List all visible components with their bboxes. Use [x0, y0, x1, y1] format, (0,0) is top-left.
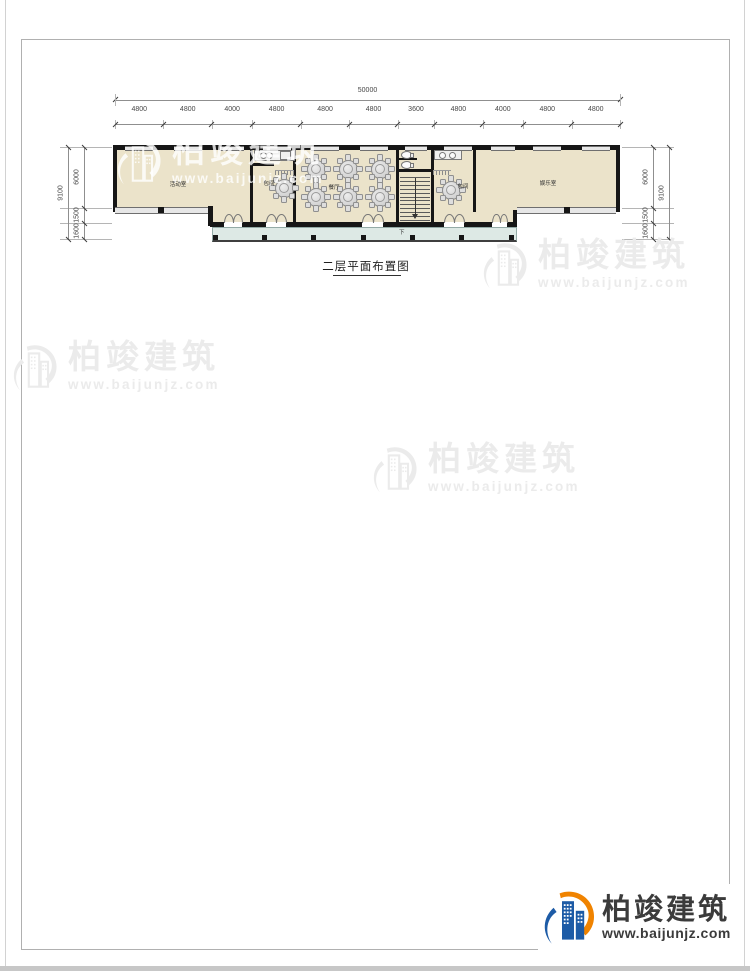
stair-tread — [400, 220, 430, 221]
wall-toilet-bottom — [397, 169, 433, 172]
chair — [337, 202, 343, 208]
chair — [440, 195, 446, 201]
chair — [337, 174, 343, 180]
porch-column — [410, 235, 415, 240]
dim-total-label: 9100 — [659, 185, 666, 201]
wall-core-room4 — [431, 150, 434, 224]
dining-table-center — [375, 164, 385, 174]
dim-segment-label: 6000 — [74, 170, 81, 186]
chair — [292, 185, 298, 191]
dining-table-center — [311, 164, 321, 174]
chair — [356, 194, 362, 200]
room-label: 包间 — [457, 182, 468, 190]
logo-building-icon — [538, 888, 598, 948]
wall-post — [564, 207, 570, 213]
chair — [313, 154, 319, 160]
dim-segment-label: 1600 — [74, 223, 81, 239]
chair — [321, 186, 327, 192]
chair — [333, 166, 339, 172]
chair — [337, 158, 343, 164]
porch-column — [213, 235, 218, 240]
chair — [356, 166, 362, 172]
chair — [385, 202, 391, 208]
chair — [385, 174, 391, 180]
chair — [456, 195, 462, 201]
wall-dining-core — [396, 150, 399, 224]
window — [220, 146, 243, 151]
chair — [440, 179, 446, 185]
dim-bay-label: 4800 — [317, 106, 333, 113]
dim-bay-label: 4800 — [366, 106, 382, 113]
chair — [345, 182, 351, 188]
dim-ext — [622, 239, 674, 240]
wall-post — [158, 207, 164, 213]
dim-bay-label: 3600 — [408, 106, 424, 113]
chair — [353, 186, 359, 192]
chair — [305, 174, 311, 180]
chair — [301, 194, 307, 200]
porch-column — [509, 235, 514, 240]
dim-bay-label: 4000 — [495, 106, 511, 113]
chair — [333, 194, 339, 200]
wall-left — [113, 145, 117, 212]
stair-direction-arrow — [412, 214, 418, 219]
dim-bay-label: 4800 — [588, 106, 604, 113]
dim-ext — [620, 94, 621, 106]
chair — [321, 158, 327, 164]
stair-down-label: 下 — [399, 228, 405, 236]
wall-room4-room5 — [473, 150, 476, 212]
chair — [369, 186, 375, 192]
dim-line-total — [115, 100, 620, 101]
site-logo[interactable]: 柏竣建筑 www.baijunjz.com — [538, 884, 742, 952]
chair — [313, 205, 319, 211]
dim-bay-label: 4800 — [451, 106, 467, 113]
chair — [377, 182, 383, 188]
dim-bay-label: 4800 — [131, 106, 147, 113]
room-label: 餐厅 — [328, 183, 339, 191]
porch-column — [262, 235, 267, 240]
wall-right — [616, 145, 620, 212]
chair — [313, 182, 319, 188]
dining-table-center — [311, 192, 321, 202]
logo-brand-text: 柏竣建筑 — [602, 895, 731, 925]
dim-line-bays — [115, 124, 620, 125]
room-label: 娱乐室 — [540, 179, 557, 187]
porch-column — [311, 235, 316, 240]
chair — [345, 205, 351, 211]
dim-ext — [622, 147, 674, 148]
chair — [369, 158, 375, 164]
stair-center-rail — [415, 178, 417, 214]
wall-room1-room2 — [250, 150, 253, 224]
room-label: 活动室 — [170, 180, 187, 188]
window — [491, 146, 514, 151]
dim-ext — [115, 94, 116, 106]
chair — [369, 174, 375, 180]
washbasin — [439, 152, 446, 159]
chair — [448, 175, 454, 181]
dining-table-center — [446, 185, 456, 195]
chair — [289, 177, 295, 183]
dining-table-center — [343, 164, 353, 174]
chair — [365, 194, 371, 200]
window — [263, 146, 291, 151]
pass-through-hatch — [433, 170, 451, 175]
dim-segment-label: 6000 — [643, 170, 650, 186]
porch-column — [459, 235, 464, 240]
room-label: 包间 — [263, 179, 274, 187]
chair — [388, 194, 394, 200]
sink-basin — [266, 152, 273, 159]
chair — [353, 158, 359, 164]
dim-bay-label: 4800 — [539, 106, 555, 113]
chair — [377, 154, 383, 160]
window — [311, 146, 339, 151]
chair — [388, 166, 394, 172]
window — [125, 146, 153, 151]
chair — [321, 202, 327, 208]
window — [360, 146, 388, 151]
logo-url-text: www.baijunjz.com — [602, 925, 731, 941]
chair — [305, 158, 311, 164]
dim-bay-label: 4800 — [269, 106, 285, 113]
dining-table-center — [279, 183, 289, 193]
dim-line-total — [669, 147, 670, 239]
chair — [353, 174, 359, 180]
dim-total-label: 50000 — [358, 87, 377, 94]
toilet-icon — [401, 151, 412, 159]
dim-segment-label: 1500 — [643, 207, 650, 223]
dim-line-total — [68, 147, 69, 239]
chair — [305, 202, 311, 208]
chair — [301, 166, 307, 172]
dining-table-center — [375, 192, 385, 202]
dim-total-label: 9100 — [58, 185, 65, 201]
chair — [273, 193, 279, 199]
dim-segment-label: 1500 — [74, 207, 81, 223]
window — [533, 146, 561, 151]
window — [444, 146, 472, 151]
chair — [385, 158, 391, 164]
chair — [281, 173, 287, 179]
chair — [324, 194, 330, 200]
dining-table-center — [343, 192, 353, 202]
chair — [377, 205, 383, 211]
chair — [305, 186, 311, 192]
chair — [369, 202, 375, 208]
chair — [281, 196, 287, 202]
drawing-title-underline — [333, 275, 401, 277]
chair — [365, 166, 371, 172]
washbasin — [449, 152, 456, 159]
window — [174, 146, 202, 151]
drawing-title: 二层平面布置图 — [266, 258, 466, 274]
dim-segment-label: 1600 — [643, 223, 650, 239]
chair — [321, 174, 327, 180]
chair — [448, 198, 454, 204]
stove — [280, 151, 291, 160]
chair — [289, 193, 295, 199]
dim-bay-label: 4000 — [224, 106, 240, 113]
toilet-icon — [401, 161, 412, 169]
window — [582, 146, 610, 151]
chair — [345, 154, 351, 160]
chair — [436, 187, 442, 193]
dim-bay-label: 4800 — [180, 106, 196, 113]
wall-room2-inner — [250, 163, 274, 166]
chair — [324, 166, 330, 172]
chair — [385, 186, 391, 192]
porch-column — [361, 235, 366, 240]
chair — [353, 202, 359, 208]
